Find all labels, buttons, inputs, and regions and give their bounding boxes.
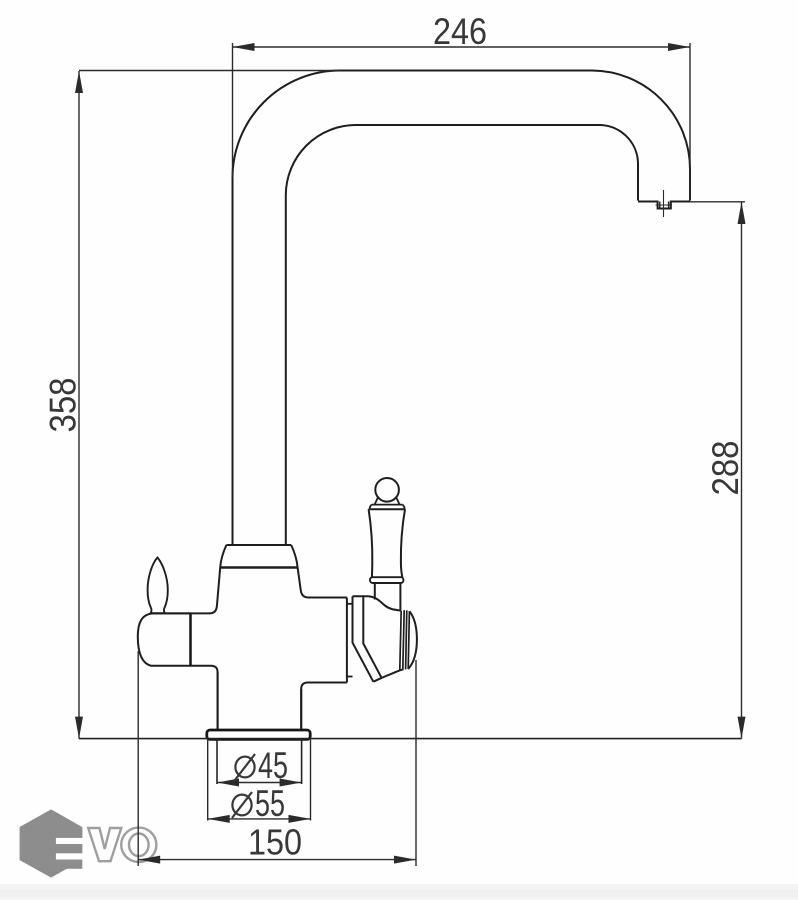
svg-text:358: 358 [43,378,84,433]
svg-text:55: 55 [255,783,285,824]
svg-text:150: 150 [248,822,302,863]
svg-text:45: 45 [258,745,288,786]
svg-text:246: 246 [433,11,487,52]
svg-text:288: 288 [705,441,746,496]
